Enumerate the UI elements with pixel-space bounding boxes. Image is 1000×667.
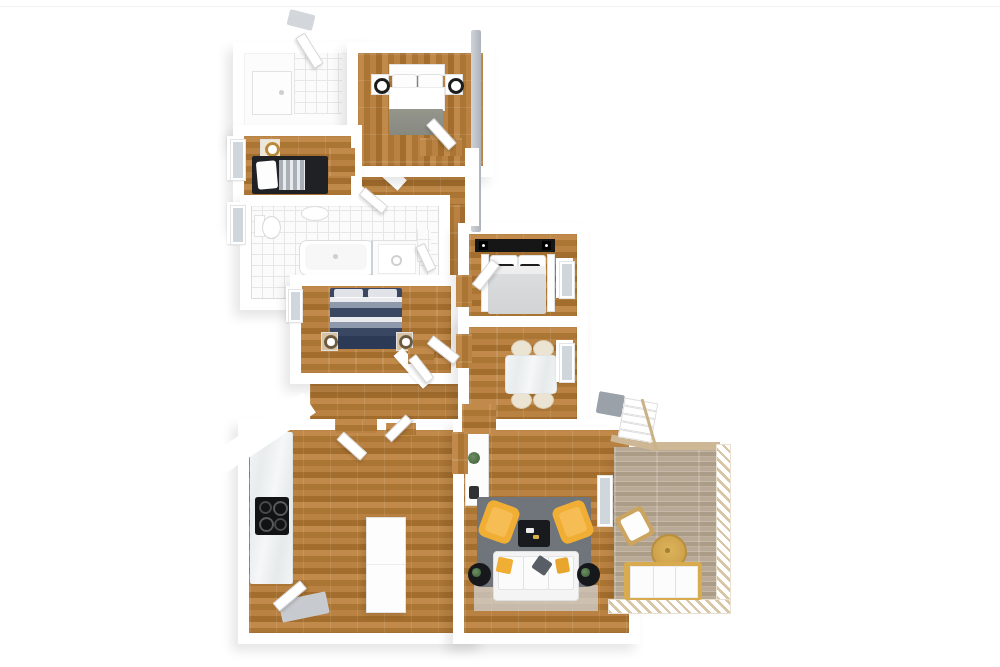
table-decor	[533, 535, 539, 539]
chair-seat	[620, 510, 651, 542]
table-lamp-icon	[399, 335, 413, 349]
cushion-divider	[653, 567, 654, 597]
bed-pillow	[256, 160, 278, 190]
wall-lamp-icon	[479, 241, 488, 250]
window-bedroom4	[560, 262, 574, 298]
toilet	[262, 216, 281, 239]
double-bed	[389, 87, 445, 111]
sofa-pillow-yellow	[555, 557, 570, 574]
armchair-seat	[558, 506, 588, 538]
plant-icon	[468, 452, 480, 464]
tall-cabinet	[366, 517, 406, 613]
washing-machine	[252, 71, 292, 115]
window-bathroom	[231, 206, 245, 244]
passage-bedroom4	[456, 275, 472, 307]
window-dining	[560, 344, 574, 382]
room-bedroom-3	[290, 275, 462, 384]
table-lamp-icon	[448, 78, 464, 94]
burner-icon	[273, 501, 288, 516]
sofa-pillow-yellow	[496, 557, 514, 575]
bed-pillow	[334, 289, 363, 298]
burner-icon	[259, 517, 274, 532]
armchair-seat	[484, 506, 514, 538]
top-edge-line	[0, 6, 1000, 7]
top-entry-step	[286, 9, 315, 31]
bench-cushions	[630, 566, 698, 598]
bed-blanket	[279, 160, 305, 190]
balcony-railing-right	[716, 444, 731, 610]
coffee-table	[518, 520, 550, 547]
cabinet-split-line	[367, 564, 405, 565]
window-bedroom3	[289, 290, 302, 322]
passage-hall-kitchen-1	[335, 419, 377, 433]
shower	[371, 240, 420, 278]
table-lamp-icon	[324, 335, 338, 349]
balcony-edge-board	[650, 440, 720, 450]
bathtub	[299, 240, 375, 276]
passage-dining-living	[462, 404, 496, 434]
single-bed	[252, 156, 328, 194]
plant-icon	[472, 568, 481, 577]
floor-plan-canvas	[0, 0, 1000, 667]
table-lamp-icon	[374, 78, 390, 94]
outdoor-bench	[624, 562, 702, 600]
sofa	[493, 551, 579, 601]
balcony-door-glass	[598, 476, 612, 526]
stair-landing	[596, 391, 625, 417]
wall-fill-right	[465, 148, 479, 226]
double-bed-navy	[330, 288, 402, 338]
bathtub-drain	[333, 254, 338, 259]
cooktop	[255, 497, 289, 535]
bed-pillow	[368, 289, 397, 298]
bed-side-rail	[547, 254, 555, 312]
table-center-dot	[665, 548, 670, 553]
wall-lamp-icon	[542, 241, 551, 250]
passage-hall-living	[452, 432, 468, 474]
double-bed	[488, 266, 546, 314]
burner-icon	[274, 518, 287, 531]
dining-table	[505, 355, 557, 394]
table-lamp-icon	[265, 142, 280, 157]
window-bedroom2	[231, 140, 245, 180]
passage-bedroom2	[329, 148, 355, 176]
washing-machine-dot	[279, 90, 284, 95]
passage-dining	[456, 334, 472, 368]
shower-drain	[391, 255, 402, 266]
plant-icon	[581, 568, 590, 577]
balcony-railing-bottom	[608, 599, 731, 614]
washbasin	[301, 206, 329, 221]
cushion-divider	[675, 567, 676, 597]
table-decor	[526, 528, 534, 533]
burner-icon	[259, 501, 272, 514]
